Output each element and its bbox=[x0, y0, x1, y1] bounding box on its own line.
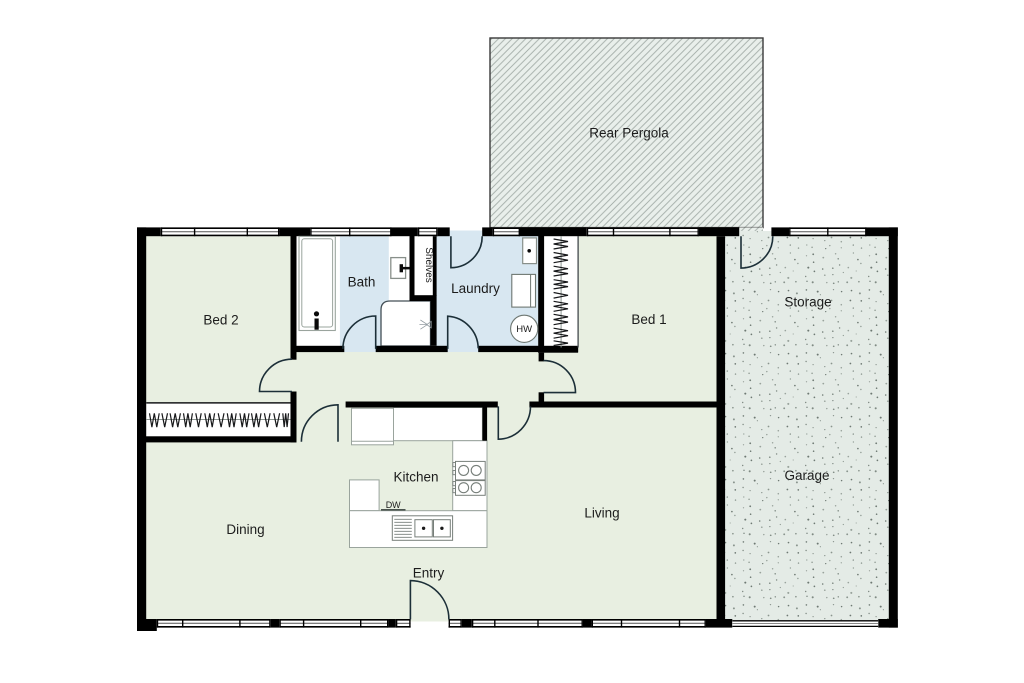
svg-text:Garage: Garage bbox=[784, 468, 829, 483]
svg-text:HW: HW bbox=[516, 324, 532, 335]
svg-text:Entry: Entry bbox=[413, 566, 445, 581]
svg-text:Storage: Storage bbox=[784, 295, 831, 310]
svg-text:Laundry: Laundry bbox=[451, 281, 500, 296]
svg-text:Bed 2: Bed 2 bbox=[203, 313, 238, 328]
svg-text:Bath: Bath bbox=[348, 275, 376, 290]
svg-text:DW: DW bbox=[386, 500, 401, 510]
svg-text:Dining: Dining bbox=[226, 522, 264, 537]
svg-text:Living: Living bbox=[584, 506, 619, 521]
svg-text:Bed 1: Bed 1 bbox=[631, 312, 666, 327]
svg-text:Shelves: Shelves bbox=[423, 247, 434, 283]
svg-text:Rear Pergola: Rear Pergola bbox=[589, 126, 669, 141]
svg-text:Kitchen: Kitchen bbox=[393, 470, 438, 485]
